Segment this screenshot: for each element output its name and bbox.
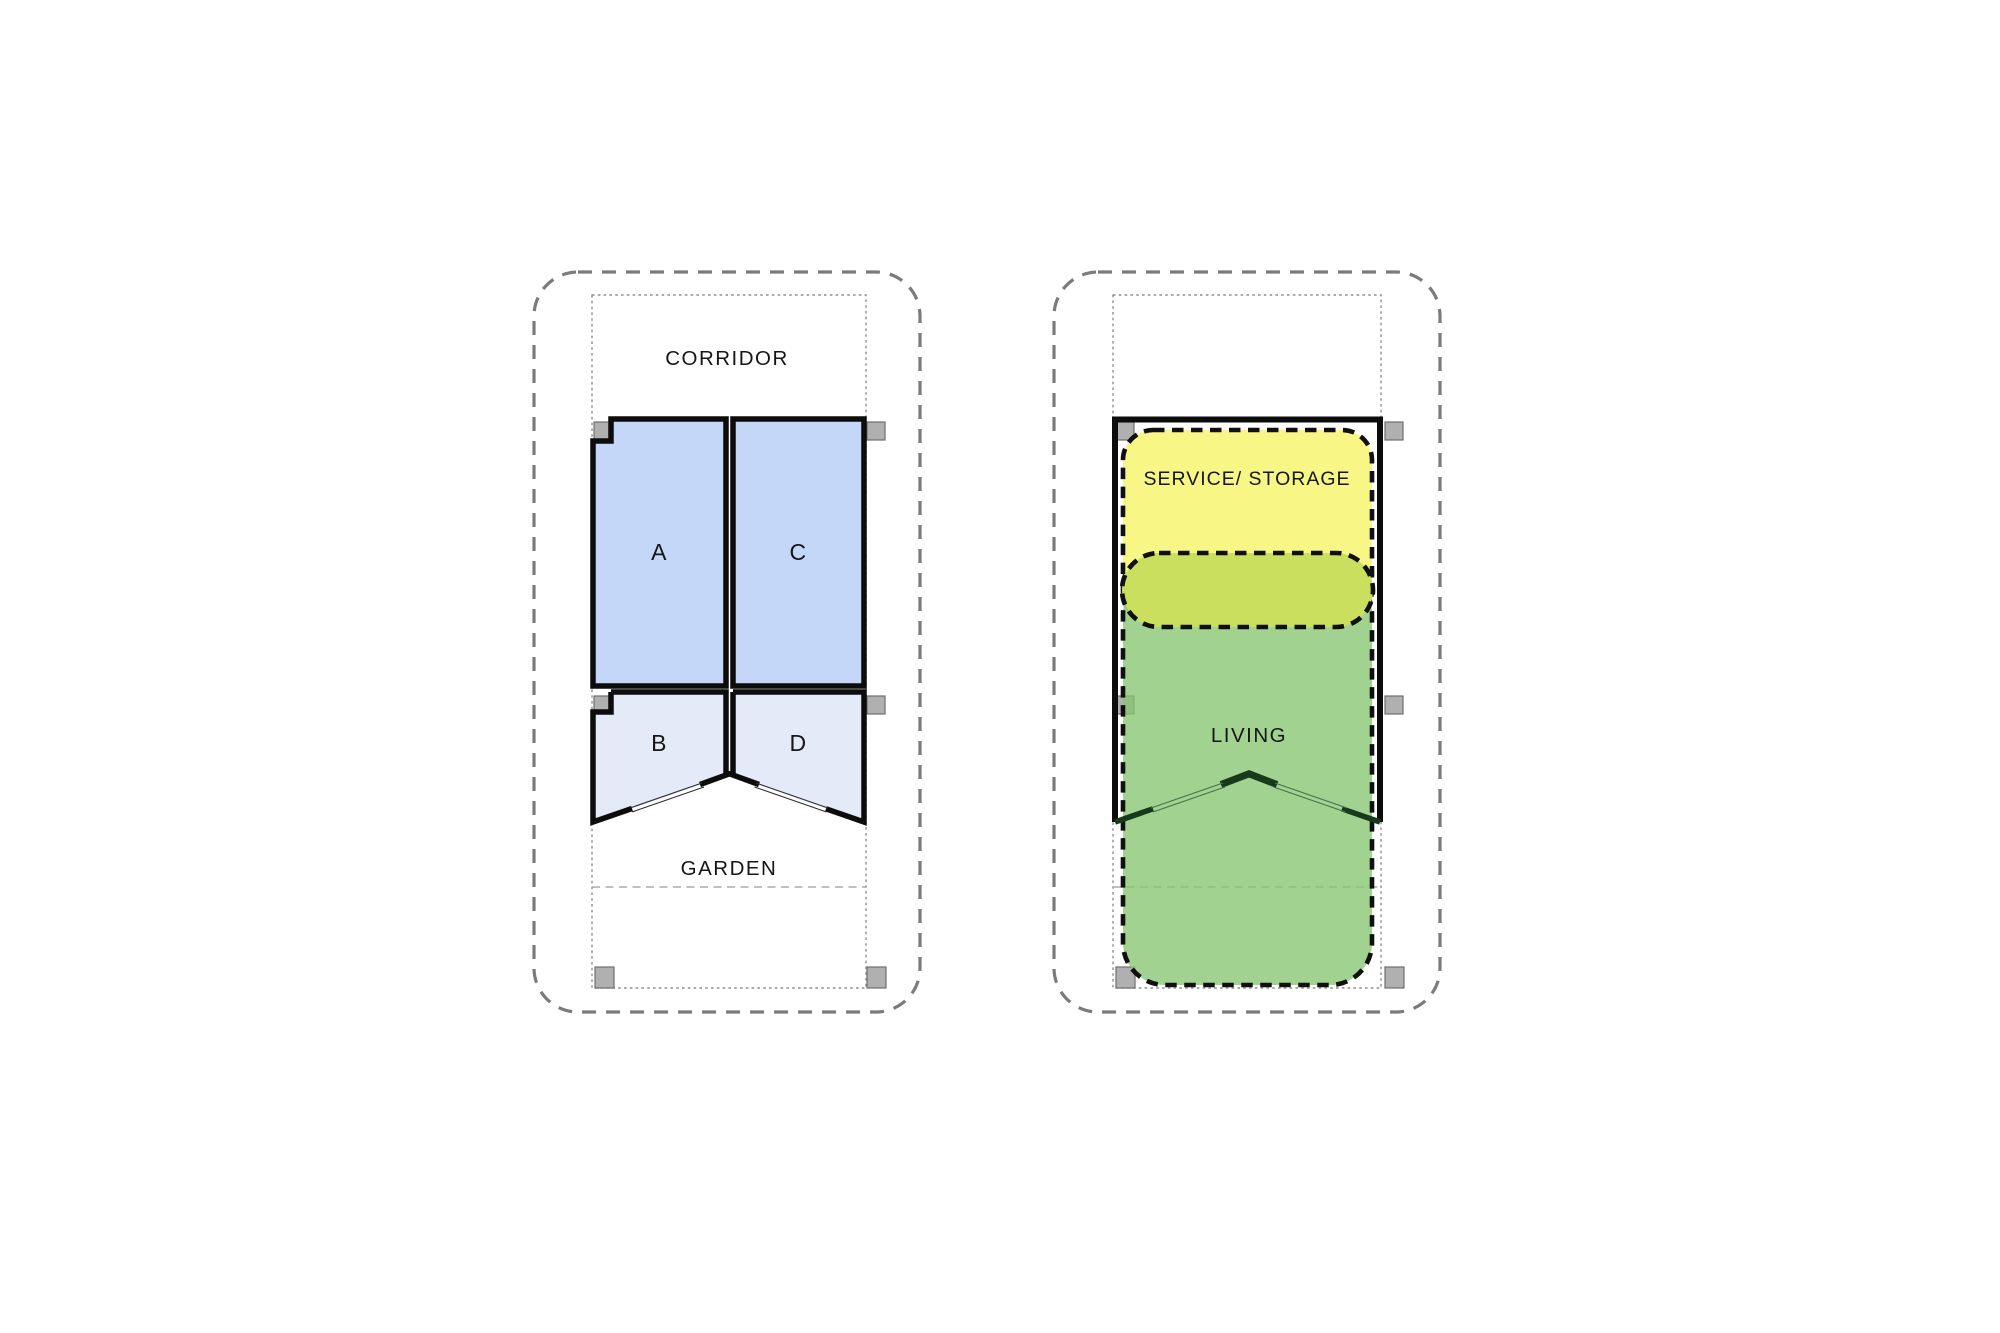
column-marker [1385,967,1404,988]
column-marker [1385,696,1403,714]
garden-label: GARDEN [681,857,778,880]
room-b-label: B [651,730,667,756]
column-marker [867,422,885,440]
living-zone [1123,572,1372,985]
column-marker [595,967,614,988]
column-marker [867,967,886,988]
right-plan: SERVICE/ STORAGE LIVING [1054,272,1440,1012]
room-c-label: C [789,539,806,565]
left-plan: CORRIDOR GARDEN A B C D [534,272,920,1012]
column-marker [867,696,885,714]
floor-plan-diagram: CORRIDOR GARDEN A B C D [0,0,2000,1333]
corridor-label: CORRIDOR [665,347,789,370]
room-d-label: D [789,730,806,756]
column-marker [1385,422,1403,440]
living-label: LIVING [1211,724,1287,747]
service-storage-label: SERVICE/ STORAGE [1143,468,1350,490]
floor-plan-diagram-page: CORRIDOR GARDEN A B C D [0,0,2000,1333]
overlap-zone [1122,553,1373,627]
room-a-label: A [651,539,667,565]
